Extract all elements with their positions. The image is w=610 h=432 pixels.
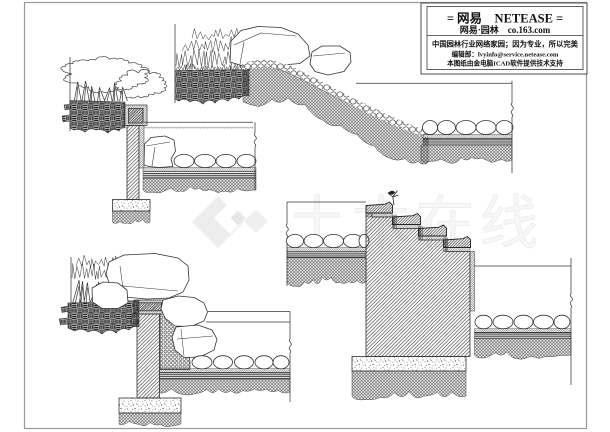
svg-text:编辑部：lvyinfo@service.netease.co: 编辑部：lvyinfo@service.netease.com bbox=[452, 49, 559, 58]
svg-text:网易·园林 co.163.com: 网易·园林 co.163.com bbox=[460, 24, 551, 35]
svg-text:= 网易 NETEASE =: = 网易 NETEASE = bbox=[447, 12, 563, 26]
svg-text:本图纸由金电脑ICAD软件提供技术支持: 本图纸由金电脑ICAD软件提供技术支持 bbox=[446, 59, 563, 68]
svg-text:中国园林行业网络家园；因为专业，所以完美: 中国园林行业网络家园；因为专业，所以完美 bbox=[432, 40, 579, 50]
